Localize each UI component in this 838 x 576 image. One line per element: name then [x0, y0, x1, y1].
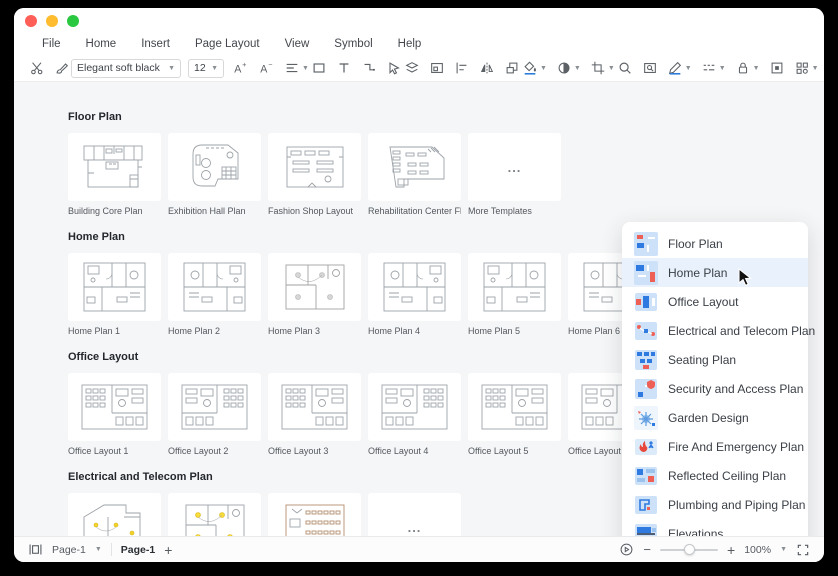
fill-color-icon	[522, 60, 538, 76]
line-style-icon	[701, 60, 717, 76]
template-name: Rehabilitation Center Floor Pl..	[368, 206, 461, 216]
category-item-seating-plan[interactable]: Seating Plan	[622, 345, 808, 374]
electrical-telecom-category-icon	[634, 319, 658, 343]
menu-insert[interactable]: Insert	[141, 38, 170, 50]
category-dropdown-panel: Floor Plan Home Plan Office Layout Elect…	[622, 222, 808, 536]
crop-button[interactable]: ▼	[589, 59, 616, 77]
connector-tool-icon	[361, 60, 377, 76]
fire-emergency-category-icon	[634, 435, 658, 459]
add-page-button[interactable]: +	[164, 542, 172, 558]
presentation-mode-button[interactable]	[619, 542, 634, 557]
section-title: Floor Plan	[68, 111, 824, 123]
floor-plan-thumbnail	[168, 133, 261, 201]
chevron-down-icon: ▼	[95, 546, 102, 553]
template-name: Office Layout 5	[468, 446, 561, 456]
fullscreen-button[interactable]	[796, 543, 810, 557]
select-tool-icon	[386, 60, 402, 76]
floor-plan-thumbnail	[368, 133, 461, 201]
rectangle-tool-button[interactable]	[310, 59, 328, 77]
category-item-home-plan[interactable]: Home Plan	[622, 258, 808, 287]
more-templates-card[interactable]: ...	[368, 493, 461, 536]
status-bar: Page-1 ▼ Page-1 + − + 100% ▼	[14, 536, 824, 562]
electrical-plan-thumbnail	[168, 493, 261, 536]
home-plan-thumbnail	[168, 253, 261, 321]
svg-text:A: A	[260, 63, 268, 75]
pan-overview-icon	[28, 542, 43, 557]
zoom-window-button[interactable]	[67, 15, 79, 27]
bring-forward-button[interactable]	[503, 59, 521, 77]
lock-button[interactable]: ▼	[734, 59, 761, 77]
home-plan-thumbnail	[68, 253, 161, 321]
chevron-down-icon: ▼	[753, 65, 760, 72]
layers-button[interactable]	[403, 59, 421, 77]
frame-icon	[769, 60, 785, 76]
elevations-category-icon	[634, 522, 658, 537]
rectangle-tool-icon	[311, 60, 327, 76]
template-name: Office Layout 3	[268, 446, 361, 456]
office-layout-thumbnail	[268, 373, 361, 441]
template-name: Exhibition Hall Plan	[168, 206, 261, 216]
category-label: Seating Plan	[668, 353, 736, 367]
menu-view[interactable]: View	[285, 38, 310, 50]
template-card-electrical-3[interactable]	[268, 493, 361, 536]
template-card-office-layout-1[interactable]	[68, 373, 161, 441]
template-name: Office Layout 1	[68, 446, 161, 456]
pen-color-button[interactable]: ▼	[666, 59, 693, 77]
search-button[interactable]	[616, 59, 634, 77]
home-plan-thumbnail	[468, 253, 561, 321]
font-family-value: Elegant soft black	[77, 62, 160, 74]
page-selector[interactable]: Page-1	[52, 544, 86, 556]
template-card-office-layout-2[interactable]	[168, 373, 261, 441]
cut-button[interactable]	[28, 59, 46, 77]
template-name: Fashion Shop Layout	[268, 206, 361, 216]
template-name: Home Plan 1	[68, 326, 161, 336]
text-tool-button[interactable]	[335, 59, 353, 77]
increase-font-size-button[interactable]: A+	[231, 59, 250, 77]
pen-color-icon	[667, 60, 683, 76]
menu-bar: File Home Insert Page Layout View Symbol…	[14, 32, 824, 55]
home-plan-category-icon	[634, 261, 658, 285]
play-circle-icon	[619, 542, 634, 557]
category-label: Home Plan	[668, 266, 727, 280]
category-label: Fire And Emergency Plan	[668, 440, 804, 454]
home-plan-thumbnail	[368, 253, 461, 321]
template-name: Home Plan 5	[468, 326, 561, 336]
view-options-icon	[794, 60, 810, 76]
connector-tool-button[interactable]	[360, 59, 378, 77]
template-name: Home Plan 3	[268, 326, 361, 336]
shape-style-button[interactable]: ▼	[555, 59, 582, 77]
find-replace-icon	[642, 60, 658, 76]
template-card-office-layout-4[interactable]	[368, 373, 461, 441]
template-card-rehabilitation-center[interactable]	[368, 133, 461, 201]
category-item-fire-emergency[interactable]: Fire And Emergency Plan	[622, 432, 808, 461]
template-card-office-layout-5[interactable]	[468, 373, 561, 441]
title-bar	[14, 8, 824, 32]
zoom-in-button[interactable]: +	[727, 542, 735, 558]
menu-file[interactable]: File	[42, 38, 61, 50]
frame-button[interactable]	[768, 59, 786, 77]
category-label: Plumbing and Piping Plan	[668, 498, 805, 512]
category-item-garden-design[interactable]: Garden Design	[622, 403, 808, 432]
office-layout-thumbnail	[368, 373, 461, 441]
text-tool-icon	[336, 60, 352, 76]
menu-home[interactable]: Home	[86, 38, 117, 50]
office-layout-thumbnail	[68, 373, 161, 441]
format-painter-icon	[54, 60, 70, 76]
template-name: Home Plan 2	[168, 326, 261, 336]
line-style-button[interactable]: ▼	[700, 59, 727, 77]
traffic-lights	[25, 15, 79, 27]
chevron-down-icon: ▼	[812, 65, 819, 72]
category-label: Office Layout	[668, 295, 739, 309]
screenshot-stage: File Home Insert Page Layout View Symbol…	[0, 0, 838, 576]
align-objects-button[interactable]	[453, 59, 471, 77]
category-label: Security and Access Plan	[668, 382, 803, 396]
container-icon	[429, 60, 445, 76]
menu-help[interactable]: Help	[398, 38, 422, 50]
lock-icon	[735, 60, 751, 76]
floor-plan-category-icon	[634, 232, 658, 256]
template-card-fashion-shop-layout[interactable]	[268, 133, 361, 201]
template-gallery: Floor Plan Building Core Plan Exhibition…	[14, 82, 824, 536]
category-item-office-layout[interactable]: Office Layout	[622, 287, 808, 316]
template-name: Office Layout 2	[168, 446, 261, 456]
menu-symbol[interactable]: Symbol	[334, 38, 372, 50]
mirror-button[interactable]	[478, 59, 496, 77]
floor-plan-thumbnail	[268, 133, 361, 201]
template-card-home-plan-4[interactable]	[368, 253, 461, 321]
office-layout-category-icon	[634, 290, 658, 314]
office-layout-thumbnail	[468, 373, 561, 441]
align-objects-icon	[454, 60, 470, 76]
zoom-level-value[interactable]: 100%	[744, 544, 771, 556]
category-item-plumbing-piping[interactable]: Plumbing and Piping Plan	[622, 490, 808, 519]
shape-style-icon	[556, 60, 572, 76]
template-name: Home Plan 4	[368, 326, 461, 336]
home-plan-thumbnail	[268, 253, 361, 321]
template-card-home-plan-3[interactable]	[268, 253, 361, 321]
increase-font-size-icon: A+	[232, 60, 249, 76]
menu-page-layout[interactable]: Page Layout	[195, 38, 260, 50]
decrease-font-size-button[interactable]: A−	[257, 59, 276, 77]
chevron-down-icon: ▼	[574, 65, 581, 72]
select-tool-button[interactable]	[385, 59, 403, 77]
app-window: File Home Insert Page Layout View Symbol…	[14, 8, 824, 562]
decrease-font-size-icon: A−	[258, 60, 275, 76]
cut-icon	[29, 60, 45, 76]
category-item-reflected-ceiling[interactable]: Reflected Ceiling Plan	[622, 461, 808, 490]
security-access-category-icon	[634, 377, 658, 401]
font-size-value: 12	[194, 62, 206, 74]
more-templates-card[interactable]: ...	[468, 133, 561, 201]
font-family-select[interactable]: Elegant soft black ▼	[71, 59, 181, 78]
chevron-down-icon: ▼	[211, 65, 218, 72]
ellipsis-icon: ...	[508, 160, 522, 175]
electrical-plan-thumbnail	[68, 493, 161, 536]
more-templates-label: More Templates	[468, 206, 561, 216]
template-card-electrical-1[interactable]	[68, 493, 161, 536]
category-label: Electrical and Telecom Plan	[668, 324, 815, 338]
text-align-button[interactable]: ▼	[283, 59, 310, 77]
category-item-elevations[interactable]: Elevations	[622, 519, 808, 536]
electrical-plan-thumbnail	[268, 493, 361, 536]
office-layout-thumbnail	[168, 373, 261, 441]
statusbar-divider	[111, 543, 112, 556]
fullscreen-icon	[796, 543, 810, 557]
svg-text:+: +	[242, 61, 246, 69]
chevron-down-icon: ▼	[168, 65, 175, 72]
layers-icon	[404, 60, 420, 76]
template-card-home-plan-5[interactable]	[468, 253, 561, 321]
reflected-ceiling-category-icon	[634, 464, 658, 488]
plumbing-piping-category-icon	[634, 493, 658, 517]
find-replace-button[interactable]	[641, 59, 659, 77]
text-align-icon	[284, 60, 300, 76]
bring-forward-icon	[504, 60, 520, 76]
chevron-down-icon: ▼	[685, 65, 692, 72]
category-label: Reflected Ceiling Plan	[668, 469, 786, 483]
svg-text:−: −	[268, 61, 272, 69]
ellipsis-icon: ...	[408, 520, 422, 535]
template-card-home-plan-1[interactable]	[68, 253, 161, 321]
mirror-icon	[479, 60, 495, 76]
page-tab-active[interactable]: Page-1	[121, 544, 155, 556]
zoom-slider-knob[interactable]	[684, 544, 695, 555]
category-label: Garden Design	[668, 411, 749, 425]
template-name: Office Layout 4	[368, 446, 461, 456]
template-card-home-plan-2[interactable]	[168, 253, 261, 321]
svg-text:A: A	[234, 63, 242, 75]
floor-plan-thumbnail	[68, 133, 161, 201]
category-label: Elevations	[668, 527, 723, 537]
template-card-office-layout-3[interactable]	[268, 373, 361, 441]
crop-icon	[590, 60, 606, 76]
zoom-out-button[interactable]: −	[643, 542, 651, 557]
template-card-building-core-plan[interactable]	[68, 133, 161, 201]
chevron-down-icon: ▼	[780, 546, 787, 553]
pan-overview-button[interactable]	[28, 542, 43, 557]
chevron-down-icon: ▼	[608, 65, 615, 72]
category-item-floor-plan[interactable]: Floor Plan	[622, 229, 808, 258]
category-item-electrical-telecom[interactable]: Electrical and Telecom Plan	[622, 316, 808, 345]
template-name: Building Core Plan	[68, 206, 161, 216]
view-options-button[interactable]: ▼	[793, 59, 820, 77]
fill-color-button[interactable]: ▼	[521, 59, 548, 77]
search-icon	[617, 60, 633, 76]
format-painter-button[interactable]	[53, 59, 71, 77]
toolbar: Elegant soft black ▼ 12 ▼ A+ A− ▼	[14, 55, 824, 82]
font-size-select[interactable]: 12 ▼	[188, 59, 224, 78]
template-card-electrical-2[interactable]	[168, 493, 261, 536]
chevron-down-icon: ▼	[540, 65, 547, 72]
chevron-down-icon: ▼	[719, 65, 726, 72]
close-window-button[interactable]	[25, 15, 37, 27]
category-item-security-access[interactable]: Security and Access Plan	[622, 374, 808, 403]
category-label: Floor Plan	[668, 237, 723, 251]
chevron-down-icon: ▼	[302, 65, 309, 72]
section-floor-plan: Floor Plan Building Core Plan Exhibition…	[68, 111, 824, 216]
minimize-window-button[interactable]	[46, 15, 58, 27]
seating-plan-category-icon	[634, 348, 658, 372]
template-card-exhibition-hall-plan[interactable]	[168, 133, 261, 201]
garden-design-category-icon	[634, 406, 658, 430]
zoom-slider[interactable]	[660, 549, 718, 551]
container-button[interactable]	[428, 59, 446, 77]
